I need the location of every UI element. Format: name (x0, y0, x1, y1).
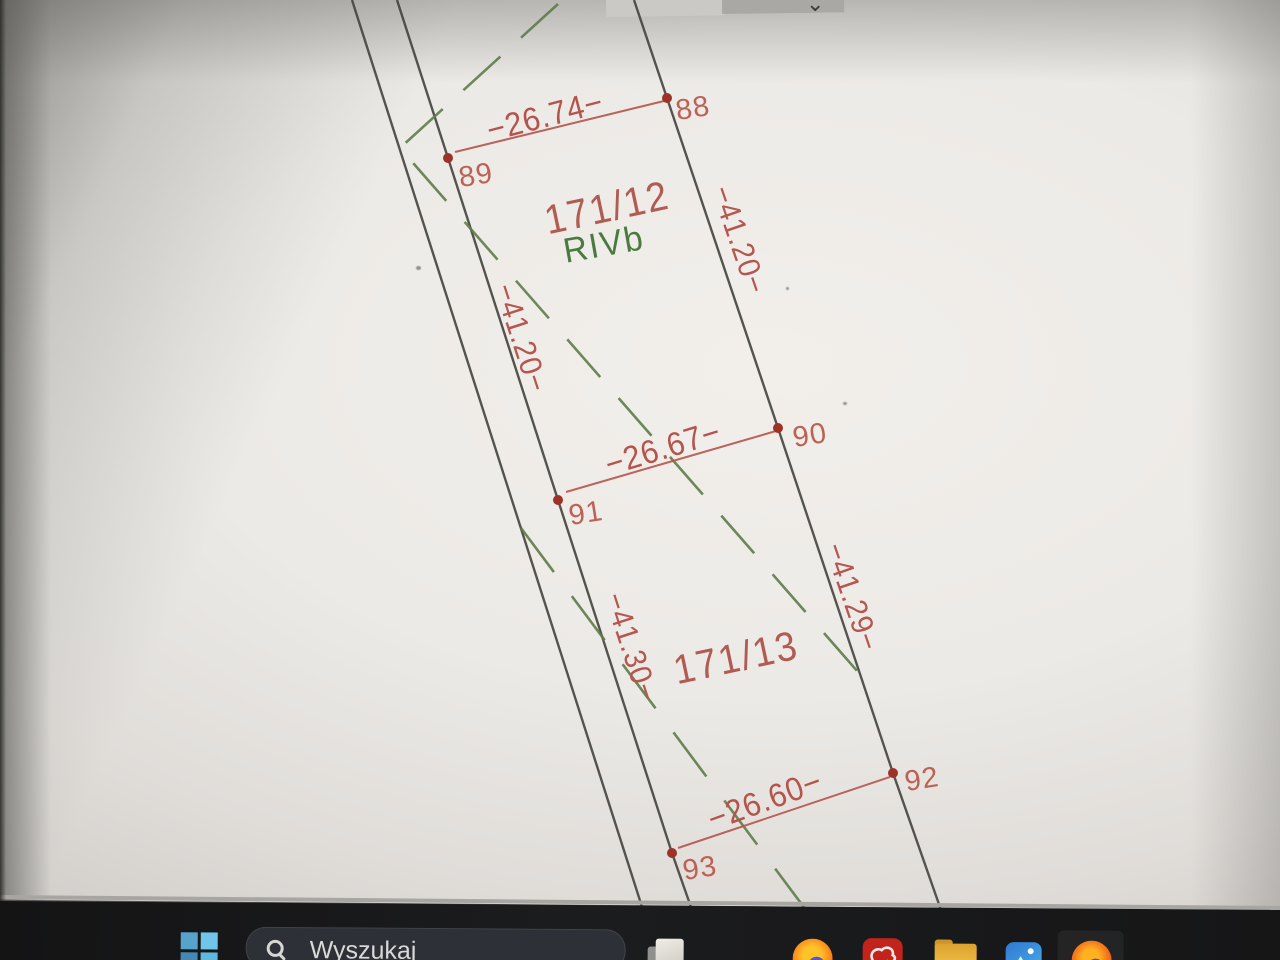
landuse-line-lower (521, 528, 806, 910)
taskbar-icon-red-map-app[interactable] (862, 938, 902, 960)
point-label-88: 88 (673, 90, 712, 128)
taskbar-icon-file-explorer[interactable] (647, 937, 687, 960)
point-label-92: 92 (902, 761, 941, 799)
dust-speck (843, 402, 847, 405)
point-dot-88 (662, 93, 672, 103)
point-label-89: 89 (456, 157, 495, 195)
folder-front-icon (656, 939, 684, 960)
point-dot-89 (443, 153, 453, 163)
red-app-glyph-icon (862, 938, 902, 960)
point-dot-91 (553, 495, 563, 505)
taskbar-icon-firefox[interactable] (792, 939, 832, 960)
point-label-93: 93 (680, 850, 719, 888)
search-placeholder-text: Wyszukaj (310, 936, 417, 960)
taskbar-search[interactable]: Wyszukaj (246, 927, 626, 960)
windows-logo-pane (201, 932, 218, 949)
taskbar-icon-folder[interactable] (935, 940, 977, 960)
windows-logo-pane (181, 952, 198, 960)
windows-logo-pane (181, 932, 198, 949)
photographed-screen: ⌄ (0, 0, 1280, 960)
photos-sun-icon (1028, 948, 1034, 954)
windows-taskbar: Wyszukaj (0, 901, 1280, 960)
search-icon (267, 940, 284, 957)
start-button[interactable] (181, 932, 219, 960)
windows-logo-pane (201, 952, 218, 960)
landuse-line-upper (400, 4, 872, 688)
taskbar-icon-photos[interactable] (1005, 942, 1041, 960)
screen-bezel-edge (0, 0, 6, 912)
point-label-90: 90 (790, 417, 829, 455)
folder-body-icon (935, 944, 977, 960)
cadastral-map-view: ⌄ (0, 0, 1280, 912)
point-label-91: 91 (566, 495, 605, 533)
point-dot-93 (667, 848, 677, 858)
point-dot-92 (888, 768, 898, 778)
dust-speck (416, 266, 421, 270)
point-dot-90 (773, 423, 783, 433)
dust-speck (786, 287, 789, 290)
